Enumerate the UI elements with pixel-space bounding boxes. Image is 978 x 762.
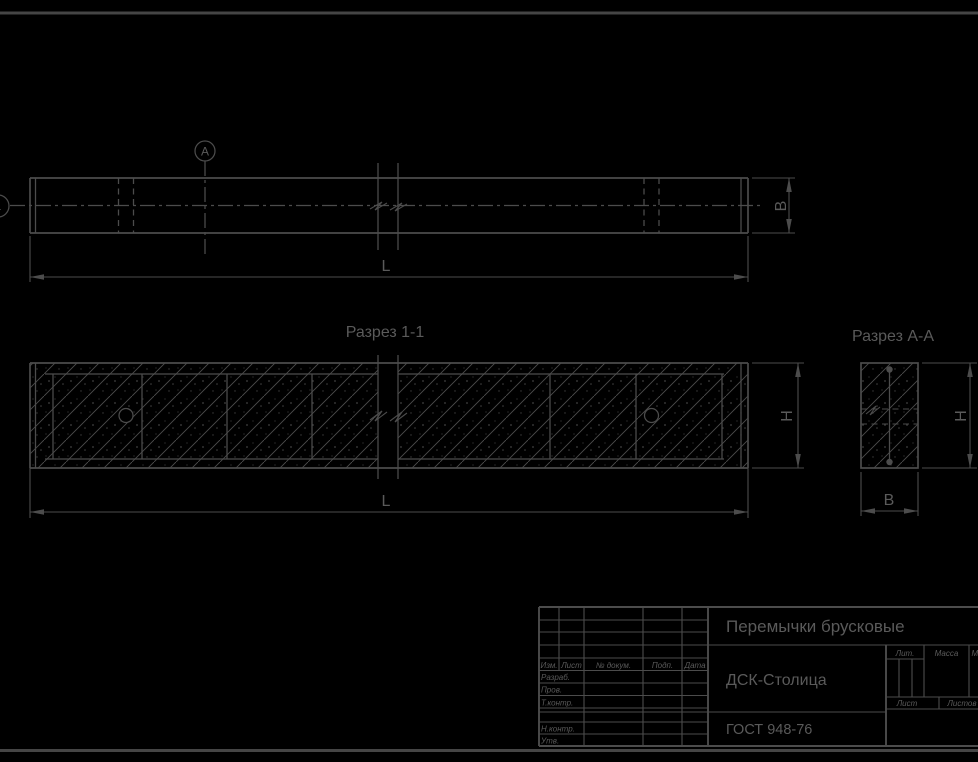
stamp-massa: Масса [935,649,959,658]
section-a-marker: А [195,141,215,257]
section-1-1-title: Разрез 1-1 [346,324,425,341]
cut-1-marker: 1 [0,195,9,217]
section-a-a: Разрез А-А H B [852,328,977,516]
section-1-1-dim-height-label: H [779,410,796,422]
cut-1-label: 1 [0,199,2,213]
col-data: Дата [683,661,706,670]
section-a-a-title: Разрез А-А [852,328,934,345]
row-utv: Утв. [540,737,559,746]
stamp-lit: Лит. [895,649,915,658]
col-doc: № докум. [596,661,631,670]
col-list: Лист [560,661,582,670]
col-izm: Изм. [540,661,557,670]
engineering-drawing: А 1 L B Разрез 1-1 [0,0,978,762]
row-razrab: Разраб. [541,673,570,682]
row-tkontr: Т.контр. [541,699,573,708]
section-1-1: Разрез 1-1 [30,324,804,518]
company-name: ДСК-Столица [726,672,827,689]
lifting-loop-left [119,409,133,423]
section-1-1-hatch-left [30,363,378,468]
section-a-a-dim-height: H [922,363,977,468]
section-a-a-dim-width: B [861,472,918,516]
title-block: Перемычки брусковые ДСК-Столица ГОСТ 948… [539,607,978,746]
section-1-1-dim-height: H [752,363,804,468]
standard-number: ГОСТ 948-76 [726,722,812,738]
section-a-a-dim-width-label: B [884,492,895,509]
section-a-a-dim-height-label: H [953,410,970,422]
plan-dim-length-label: L [382,258,391,275]
stamp-list: Лист [896,699,918,708]
plan-view: А 1 L B [0,141,795,282]
plan-dim-width-label: B [773,201,790,212]
drawing-sheet: А 1 L B Разрез 1-1 [0,0,978,762]
section-1-1-hatch-right [398,363,748,468]
product-title: Перемычки брусковые [726,617,905,636]
section-a-letter: А [201,145,209,159]
plan-dim-length: L [30,236,748,282]
stamp-scale: Масштаб [972,649,978,658]
section-1-1-dim-length: L [30,468,748,518]
row-nkontr: Н.контр. [541,725,575,734]
row-prov: Пров. [541,686,562,695]
section-1-1-dim-length-label: L [382,493,391,510]
stamp-listov: Листов [946,699,976,708]
col-podp: Подп. [652,661,673,670]
lifting-loop-right [645,409,659,423]
